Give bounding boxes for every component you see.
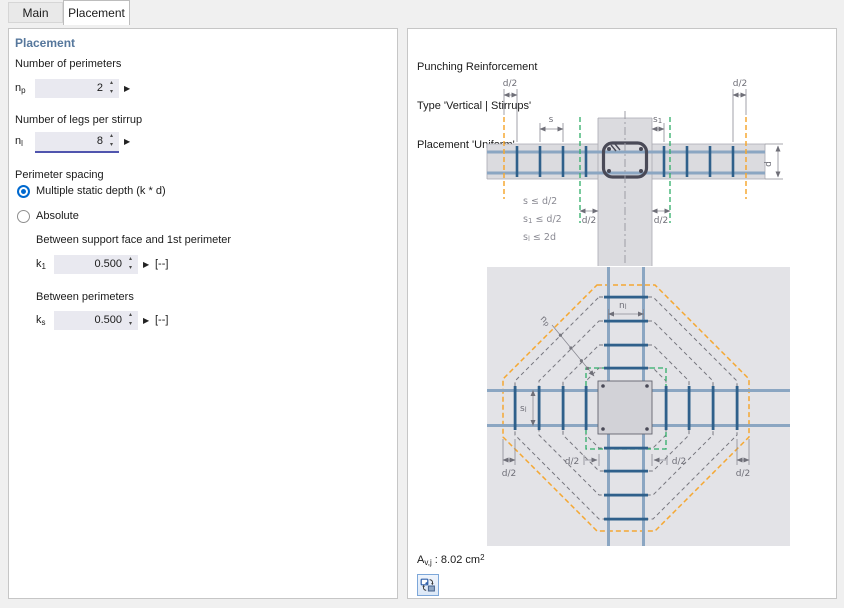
plan-label-nl: nl xyxy=(619,301,627,311)
ks-spin-up-icon[interactable]: ▴ xyxy=(125,311,136,320)
np-spinner: ▴ ▾ xyxy=(106,79,117,98)
top-rebar xyxy=(487,151,765,154)
ks-value: 0.500 xyxy=(94,311,122,330)
preview-header-line1: Punching Reinforcement xyxy=(417,61,537,74)
column-plan xyxy=(598,381,652,434)
dim-label-d2-top-right: d/2 xyxy=(733,79,747,89)
nl-spin-down-icon[interactable]: ▾ xyxy=(106,141,117,150)
ks-spin-down-icon[interactable]: ▾ xyxy=(125,320,136,329)
preview-panel: Punching Reinforcement Type 'Vertical | … xyxy=(407,28,837,599)
k1-spin-up-icon[interactable]: ▴ xyxy=(125,255,136,264)
nl-flyout-icon[interactable]: ▶ xyxy=(124,132,130,151)
plan-label-d2-right: d/2 xyxy=(736,469,750,479)
dim-label-s1: s1 xyxy=(653,115,662,125)
k1-value: 0.500 xyxy=(94,255,122,274)
tab-main[interactable]: Main xyxy=(8,2,63,23)
ks-unit: [--] xyxy=(155,314,168,326)
k1-spin-down-icon[interactable]: ▾ xyxy=(125,264,136,273)
np-value: 2 xyxy=(97,79,103,98)
dim-label-d2-bottom-left: d/2 xyxy=(582,216,596,226)
cross-section-diagram: d/2 d/2 s s1 d d/2 d/2 s ≤ d/2 s1 ≤ d/2 … xyxy=(478,76,808,266)
plan-label-d2-mid-left: d/2 xyxy=(565,457,579,467)
dim-label-s: s xyxy=(549,115,554,125)
label-between-perimeters: Between perimeters xyxy=(36,291,134,303)
label-perimeter-spacing: Perimeter spacing xyxy=(15,169,104,181)
tab-placement[interactable]: Placement xyxy=(63,0,130,25)
ks-field[interactable]: 0.500 ▴ ▾ xyxy=(54,311,138,330)
radio-absolute[interactable] xyxy=(17,210,30,223)
k1-unit: [--] xyxy=(155,258,168,270)
label-between-support-face: Between support face and 1st perimeter xyxy=(36,234,231,246)
k1-field[interactable]: 0.500 ▴ ▾ xyxy=(54,255,138,274)
ks-spinner: ▴ ▾ xyxy=(125,311,136,330)
np-field[interactable]: 2 ▴ ▾ xyxy=(35,79,119,98)
np-flyout-icon[interactable]: ▶ xyxy=(124,79,130,98)
np-spin-down-icon[interactable]: ▾ xyxy=(106,88,117,97)
ks-symbol: ks xyxy=(36,314,46,327)
plan-view-diagram: nl np sl d/2 d/2 d/2 d/2 xyxy=(480,267,796,547)
k1-flyout-icon[interactable]: ▶ xyxy=(143,255,149,274)
np-symbol: np xyxy=(15,82,26,95)
formula-sl: sl ≤ 2d xyxy=(523,232,556,243)
ks-flyout-icon[interactable]: ▶ xyxy=(143,311,149,330)
dim-label-d: d xyxy=(764,161,774,167)
nl-symbol: nl xyxy=(15,135,23,148)
result-area-value: Av,j : 8.02 cm2 xyxy=(417,553,485,567)
label-number-of-legs: Number of legs per stirrup xyxy=(15,114,142,126)
placement-settings-panel: Placement Number of perimeters np 2 ▴ ▾ … xyxy=(8,28,398,599)
radio-absolute-label[interactable]: Absolute xyxy=(36,210,79,222)
panel-heading: Placement xyxy=(15,36,75,50)
radio-multiple-static-depth[interactable] xyxy=(17,185,30,198)
radio-multiple-static-depth-label[interactable]: Multiple static depth (k * d) xyxy=(36,185,166,197)
np-spin-up-icon[interactable]: ▴ xyxy=(106,79,117,88)
transfer-icon xyxy=(420,577,436,593)
dim-label-d2-top-left: d/2 xyxy=(503,79,517,89)
formula-s1: s1 ≤ d/2 xyxy=(523,214,562,225)
label-number-of-perimeters: Number of perimeters xyxy=(15,58,121,70)
plan-label-d2-left: d/2 xyxy=(502,469,516,479)
dim-label-d2-bottom-right: d/2 xyxy=(654,216,668,226)
nl-field[interactable]: 8 ▴ ▾ xyxy=(35,132,119,151)
nl-spinner: ▴ ▾ xyxy=(106,132,117,151)
plan-label-d2-mid-right: d/2 xyxy=(672,457,686,467)
plan-label-sl: sl xyxy=(520,404,527,414)
formula-s: s ≤ d/2 xyxy=(523,196,557,207)
transfer-values-button[interactable] xyxy=(417,574,439,596)
nl-spin-up-icon[interactable]: ▴ xyxy=(106,132,117,141)
tab-placement-label: Placement xyxy=(68,6,125,20)
bottom-rebar xyxy=(487,172,765,175)
nl-value: 8 xyxy=(97,132,103,151)
k1-spinner: ▴ ▾ xyxy=(125,255,136,274)
k1-symbol: k1 xyxy=(36,258,46,271)
tab-bar: Main Placement xyxy=(0,0,844,25)
nl-focus-underline xyxy=(35,151,119,153)
tab-main-label: Main xyxy=(22,6,48,20)
